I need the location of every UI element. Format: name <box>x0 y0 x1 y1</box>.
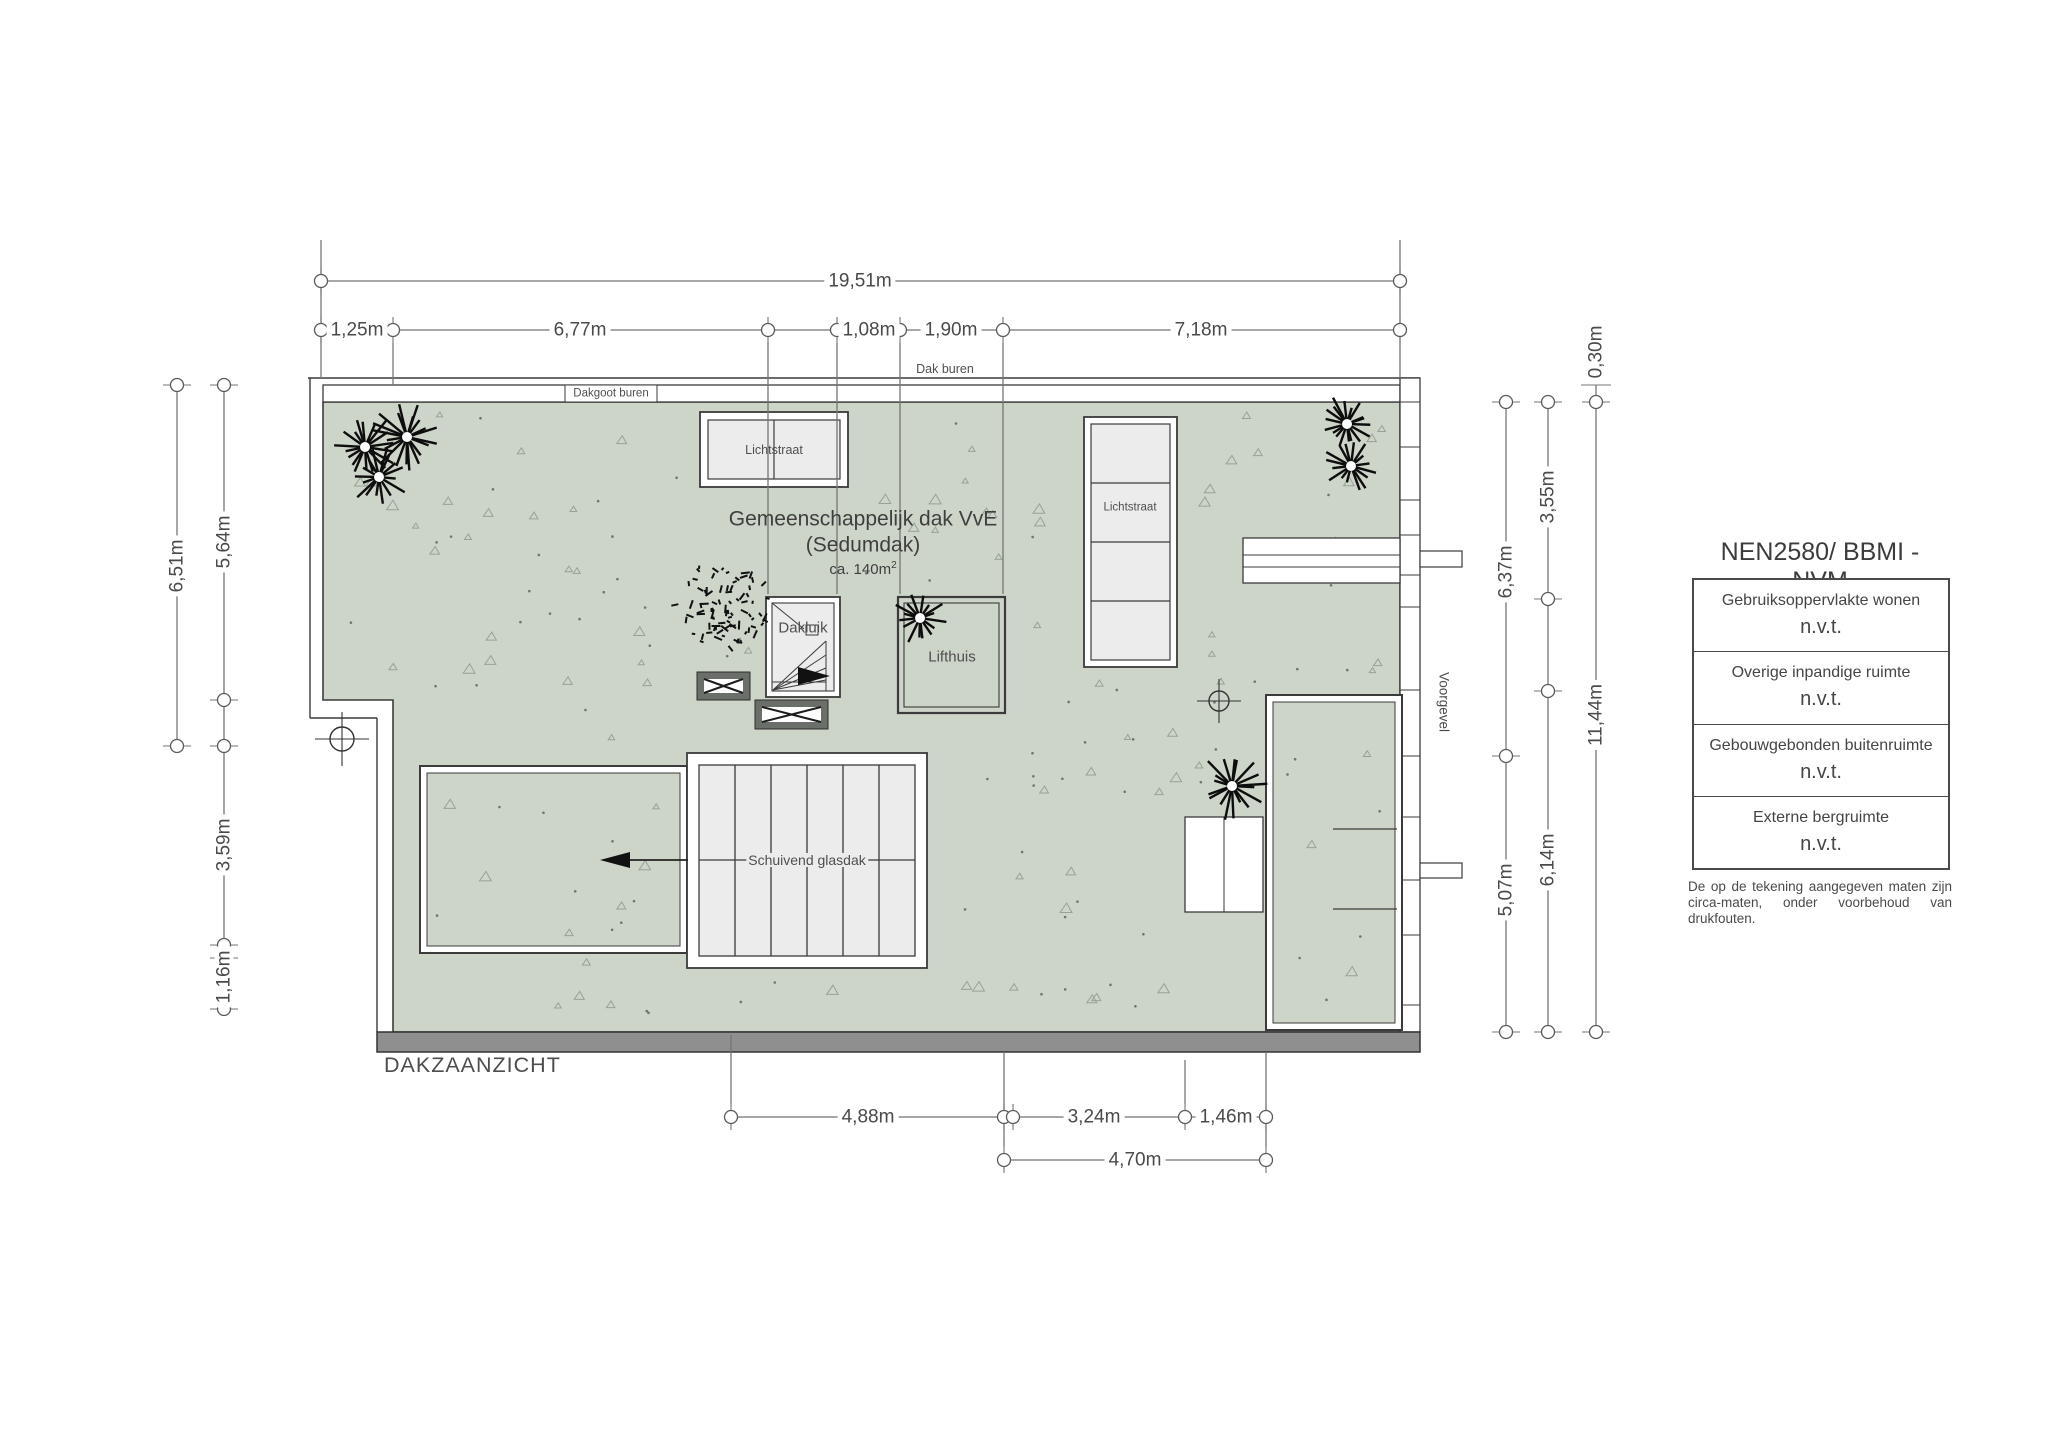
legend-row: Externe bergruimte n.v.t. <box>1694 796 1948 868</box>
dim-bottom-4: 4,70m <box>1105 1151 1166 1170</box>
dim-left-1: 6,51m <box>168 536 187 597</box>
roof-vent-2 <box>755 700 828 729</box>
skylight-right <box>1084 417 1177 667</box>
legend-row-label: Overige inpandige ruimte <box>1732 664 1911 682</box>
legend-row-value: n.v.t. <box>1800 761 1842 784</box>
legend-row: Gebouwgebonden buitenruimte n.v.t. <box>1694 724 1948 796</box>
roof-area-size: ca. 140m2 <box>829 561 896 577</box>
skylight-top-label: Lichtstraat <box>745 444 803 457</box>
dim-right-1144: 11,44m <box>1587 680 1606 750</box>
voorgevel-label: Voorgevel <box>1437 672 1452 732</box>
dim-left-2: 5,64m <box>215 512 234 573</box>
sliding-glass-roof-label: Schuivend glasdak <box>746 853 868 867</box>
dim-right-614: 6,14m <box>1539 830 1558 891</box>
roof-vent-1 <box>697 672 750 700</box>
roof-area-subtitle: (Sedumdak) <box>806 535 920 556</box>
legend-row-value: n.v.t. <box>1800 833 1842 856</box>
legend-row-value: n.v.t. <box>1800 616 1842 639</box>
legend-disclaimer: De op de tekening aangegeven maten zijn … <box>1688 879 1952 928</box>
survey-marker-left <box>315 712 369 766</box>
dim-top-2: 6,77m <box>550 321 611 340</box>
facade-bar <box>377 1032 1420 1052</box>
roof-area-title: Gemeenschappelijk dak VvE <box>729 509 997 530</box>
legend-row-label: Gebruiksoppervlakte wonen <box>1722 592 1920 610</box>
lift-house-label: Lifthuis <box>928 650 976 665</box>
dim-bottom-3: 1,46m <box>1196 1108 1257 1127</box>
legend-row-label: Externe bergruimte <box>1753 809 1889 827</box>
dak-buren-label: Dak buren <box>916 363 974 376</box>
dim-right-507: 5,07m <box>1497 860 1516 921</box>
dim-top-5: 7,18m <box>1171 321 1232 340</box>
dim-bottom-1: 4,88m <box>838 1108 899 1127</box>
dakgoot-buren-label: Dakgoot buren <box>573 388 648 400</box>
dim-bottom-2: 3,24m <box>1064 1108 1125 1127</box>
dim-left-4: 1,16m <box>215 947 234 1008</box>
dim-right-637: 6,37m <box>1497 542 1516 603</box>
dim-top-4: 1,90m <box>921 321 982 340</box>
legend-row: Overige inpandige ruimte n.v.t. <box>1694 651 1948 723</box>
roof-hatch-label: Dakluik <box>778 621 827 636</box>
dim-total-width: 19,51m <box>824 272 895 291</box>
legend-row-value: n.v.t. <box>1800 688 1842 711</box>
legend-table: Gebruiksoppervlakte wonen n.v.t. Overige… <box>1692 578 1950 870</box>
dim-top-3: 1,08m <box>839 321 900 340</box>
roof-hatch <box>766 597 840 697</box>
dim-top-1: 1,25m <box>327 321 388 340</box>
dakgoot-strip <box>323 385 1400 402</box>
roof-unit-box <box>1185 817 1263 912</box>
dim-right-030: 0,30m <box>1587 322 1606 383</box>
legend-row: Gebruiksoppervlakte wonen n.v.t. <box>1694 580 1948 651</box>
dim-left-3: 3,59m <box>215 815 234 876</box>
floorplan-page: { "title": "DAKZAANZICHT", "roof": { "li… <box>0 0 2048 1448</box>
roof-terrace-right <box>1266 695 1402 1030</box>
skylight-right-label: Lichtstraat <box>1103 502 1156 514</box>
legend-row-label: Gebouwgebonden buitenruimte <box>1709 737 1932 755</box>
dim-right-355: 3,55m <box>1539 467 1558 528</box>
drawing-title: DAKZAANZICHT <box>384 1053 561 1078</box>
